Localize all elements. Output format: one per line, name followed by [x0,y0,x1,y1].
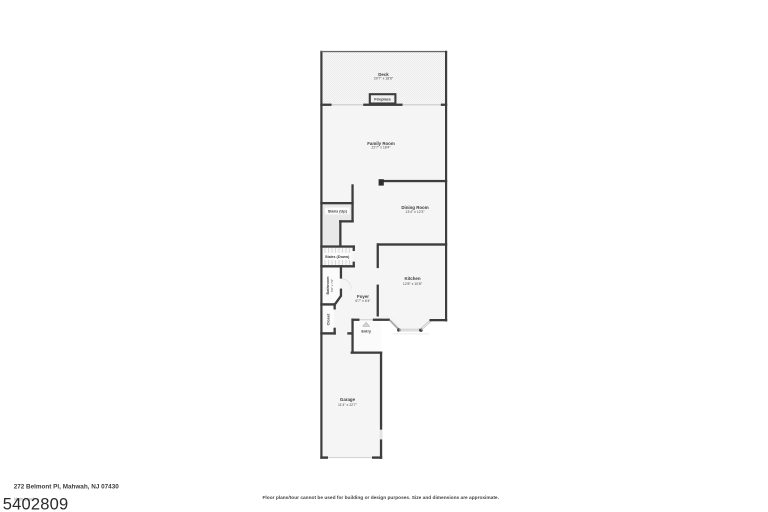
svg-text:6'7" x 6'4": 6'7" x 6'4" [355,299,371,303]
svg-text:12'8" x 10'8": 12'8" x 10'8" [403,282,423,286]
svg-text:Garage: Garage [340,397,356,402]
svg-text:Stairs (Down): Stairs (Down) [325,255,350,259]
svg-text:11'4" x 22'7": 11'4" x 22'7" [338,403,358,407]
svg-text:Fireplace: Fireplace [374,97,391,101]
svg-text:Stairs (Up): Stairs (Up) [328,209,348,213]
svg-text:272 Belmont Pl, Mahwah, NJ 074: 272 Belmont Pl, Mahwah, NJ 07430 [14,484,120,491]
svg-text:20'7" x 18'8": 20'7" x 18'8" [374,77,394,81]
svg-text:Entry: Entry [361,330,372,334]
svg-text:Kitchen: Kitchen [404,276,420,281]
svg-text:Floor plans/tour cannot be use: Floor plans/tour cannot be used for buil… [263,495,499,501]
svg-text:Closet: Closet [326,313,330,325]
svg-text:13'4" x 12'3": 13'4" x 12'3" [405,210,425,214]
svg-text:22'7" x 18'4": 22'7" x 18'4" [371,146,391,150]
svg-text:5402809: 5402809 [3,496,69,512]
svg-text:3'9" x 7'6": 3'9" x 7'6" [330,279,334,293]
